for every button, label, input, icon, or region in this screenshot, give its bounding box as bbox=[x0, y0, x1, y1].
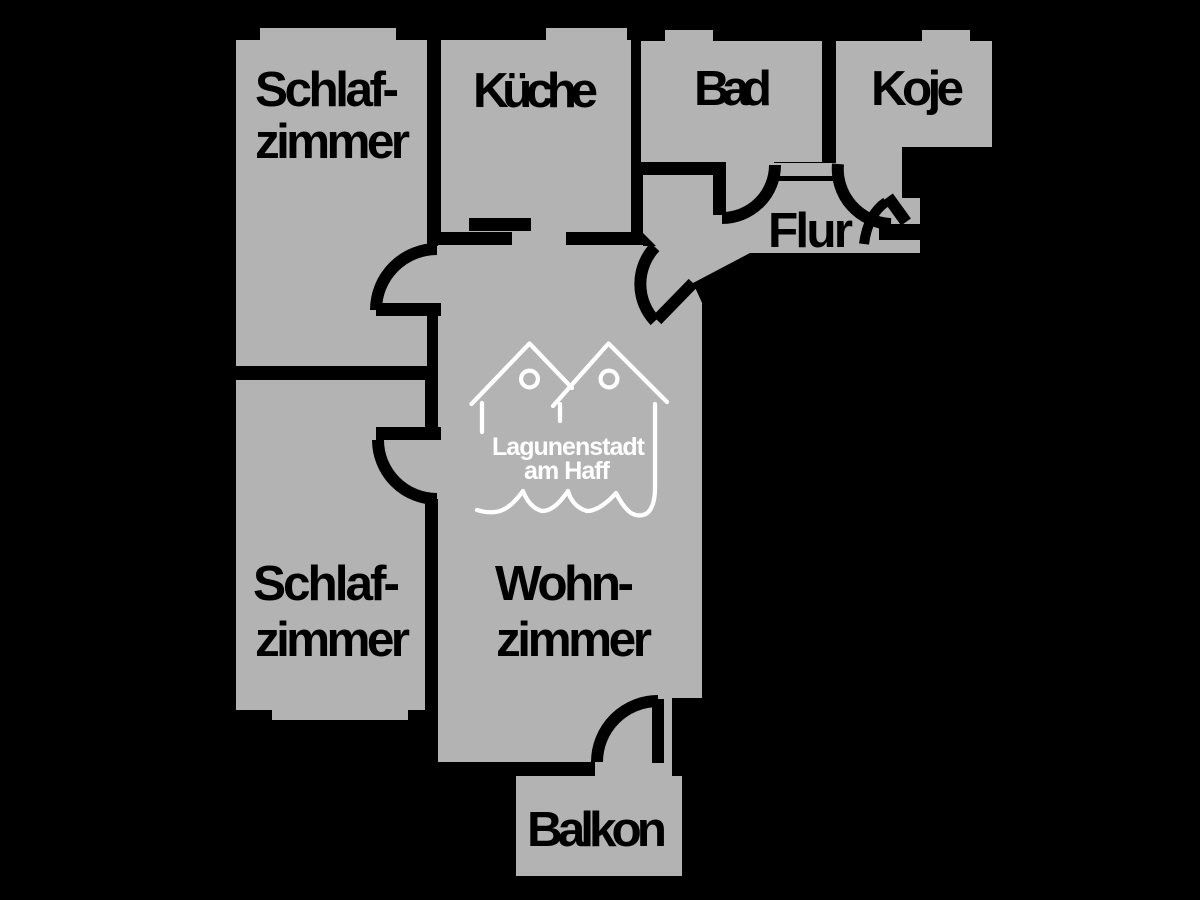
svg-text:Balkon: Balkon bbox=[527, 802, 667, 857]
svg-text:am Haff: am Haff bbox=[524, 457, 611, 485]
svg-text:Schlaf-: Schlaf- bbox=[255, 62, 399, 117]
svg-text:zimmer: zimmer bbox=[255, 114, 410, 169]
svg-text:Flur: Flur bbox=[768, 203, 853, 258]
svg-text:Schlaf-: Schlaf- bbox=[253, 556, 400, 611]
svg-text:Küche: Küche bbox=[473, 63, 598, 118]
svg-text:Wohn-: Wohn- bbox=[495, 556, 634, 611]
svg-text:Koje: Koje bbox=[871, 61, 964, 116]
svg-text:zimmer: zimmer bbox=[496, 612, 652, 667]
svg-text:Bad: Bad bbox=[694, 61, 772, 116]
svg-text:zimmer: zimmer bbox=[255, 612, 410, 667]
